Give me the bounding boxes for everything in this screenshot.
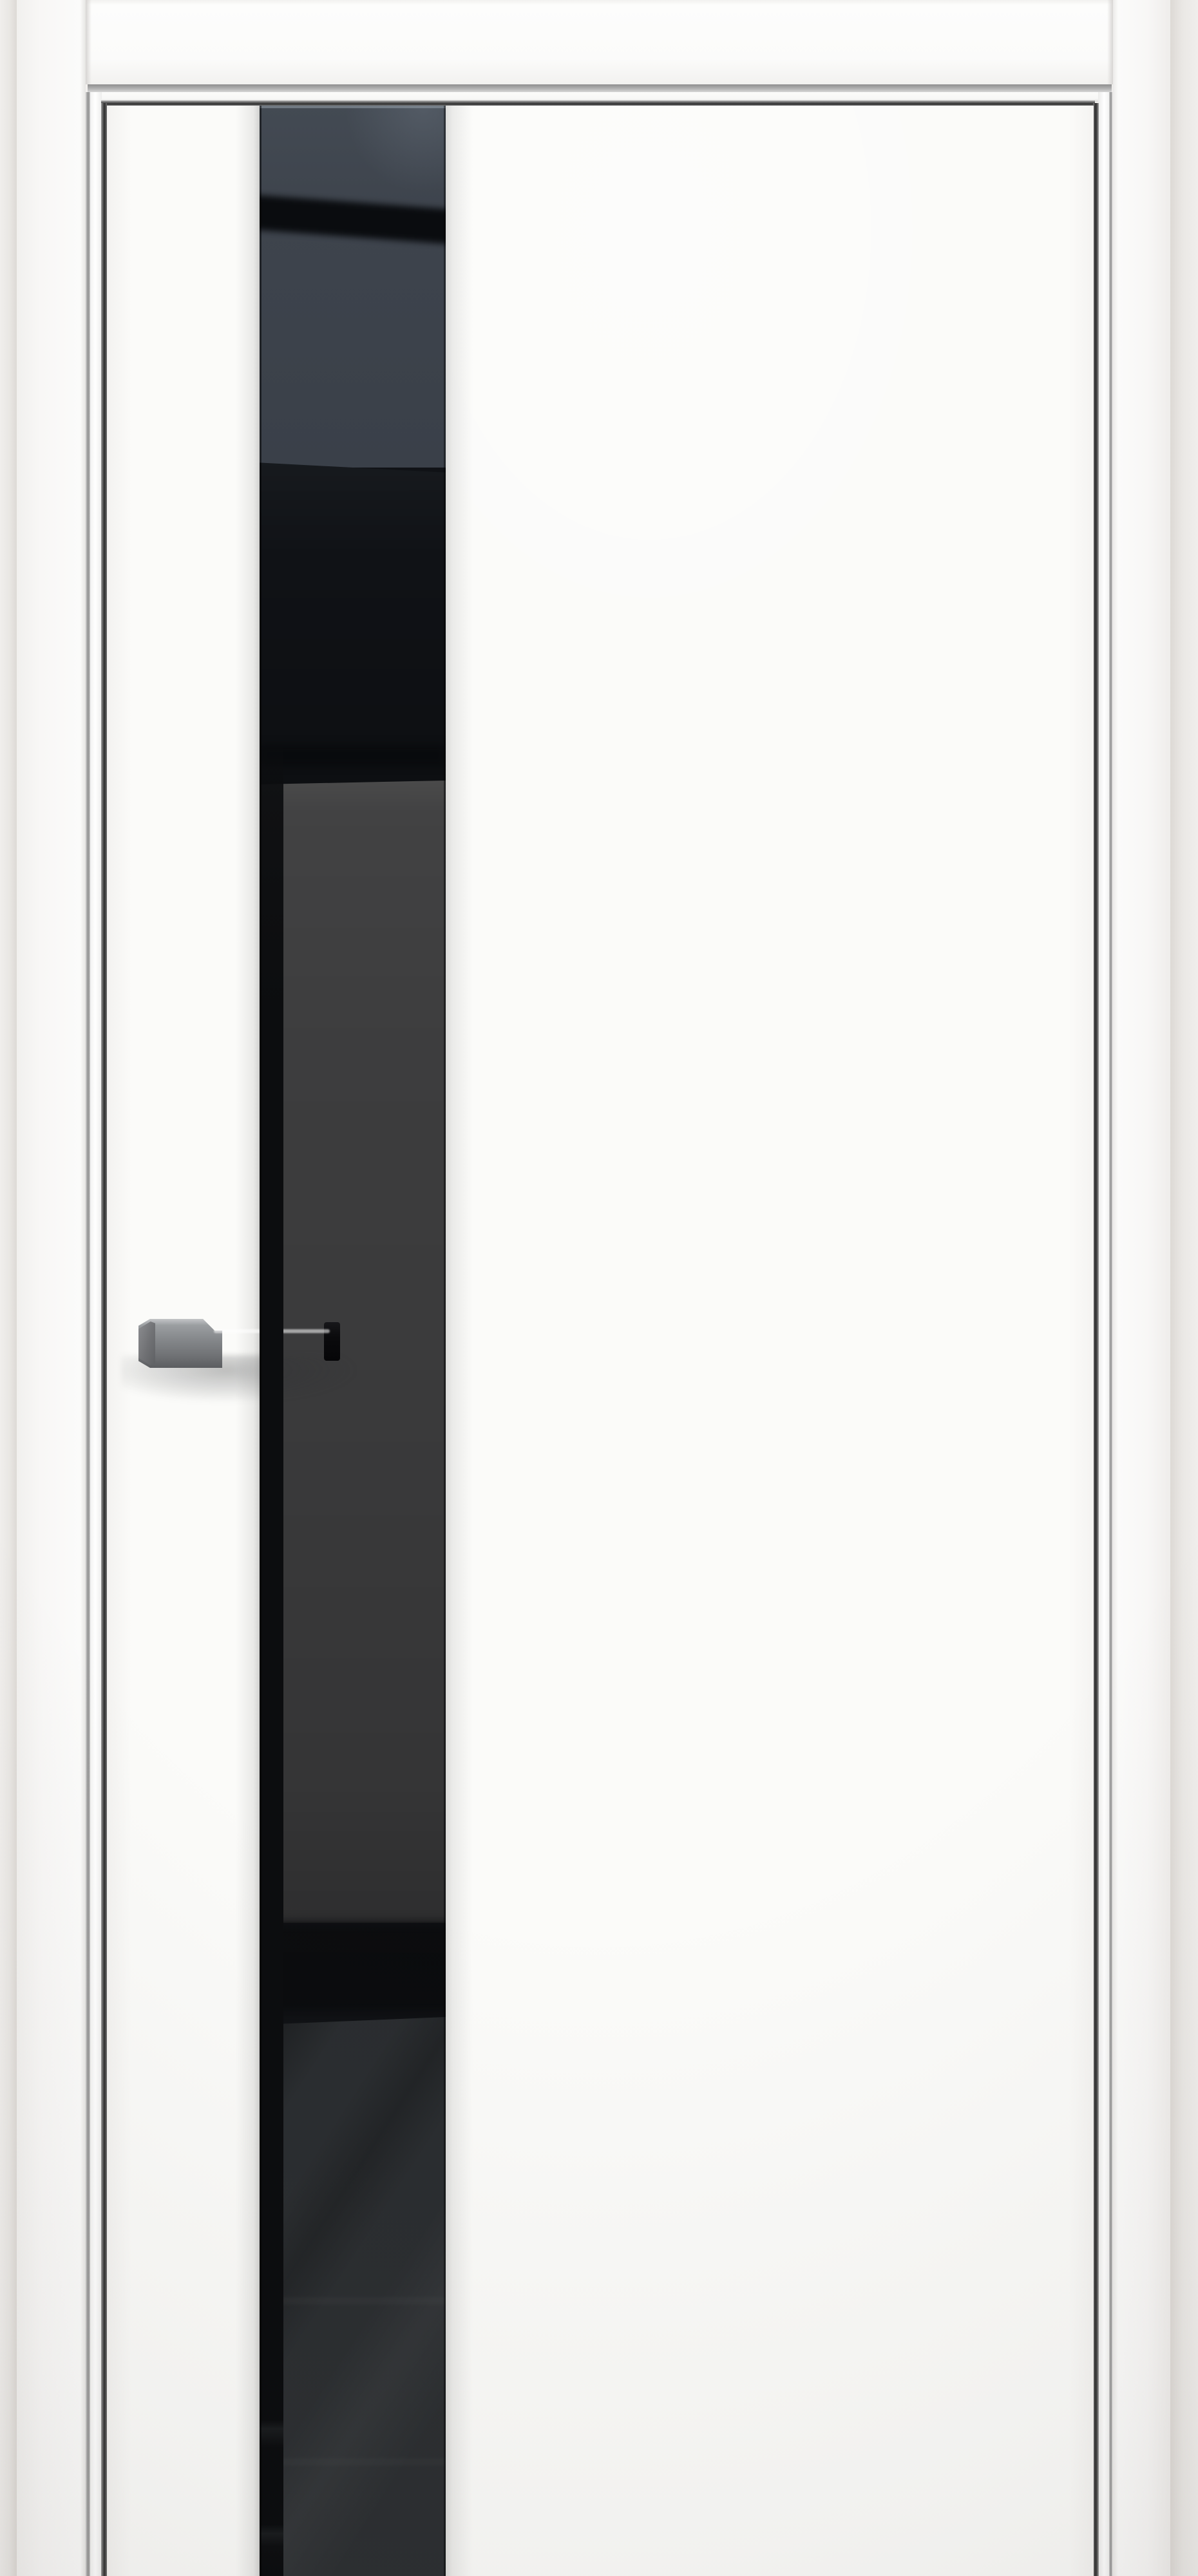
metal-reveal-right bbox=[1109, 92, 1112, 2576]
glass-faint-streak bbox=[272, 2459, 446, 2465]
wall-shade-left bbox=[0, 0, 17, 2576]
door-gap-left bbox=[101, 103, 107, 2576]
door-jamb-left bbox=[90, 92, 102, 2576]
handle-end-cap bbox=[138, 1321, 155, 1365]
wall-shade-right bbox=[1170, 0, 1198, 2576]
metal-reveal-line bbox=[88, 84, 1112, 92]
glass-faint-streak bbox=[272, 2298, 446, 2304]
door-product-photo bbox=[0, 0, 1198, 2576]
glass-top-edge-highlight bbox=[260, 106, 446, 108]
door-casing-left bbox=[17, 0, 86, 2576]
door-jamb-right bbox=[1098, 92, 1109, 2576]
glass-diagonal-sheen bbox=[260, 2016, 446, 2576]
door-lintel-board bbox=[86, 0, 1113, 84]
door-gap-right bbox=[1093, 103, 1099, 2576]
glass-reflection-slate-top bbox=[260, 106, 446, 468]
lintel-edge-shadow-left bbox=[86, 0, 91, 84]
glass-contact-shadow-right bbox=[446, 106, 473, 2576]
glass-reflection-left-bar bbox=[260, 739, 283, 2576]
glass-reflection-shadow-band bbox=[260, 744, 446, 766]
lintel-edge-shadow-right bbox=[1107, 0, 1113, 84]
metal-reveal-left bbox=[86, 92, 90, 2576]
door-casing-right bbox=[1112, 0, 1170, 2576]
glass-reflection-black-low bbox=[260, 1915, 446, 2025]
glass-edge-right bbox=[444, 106, 446, 2576]
glass-edge-left bbox=[260, 106, 261, 2576]
glass-reflection-black-mid bbox=[260, 459, 446, 787]
glass-reflection-charcoal-bottom bbox=[260, 2016, 446, 2576]
